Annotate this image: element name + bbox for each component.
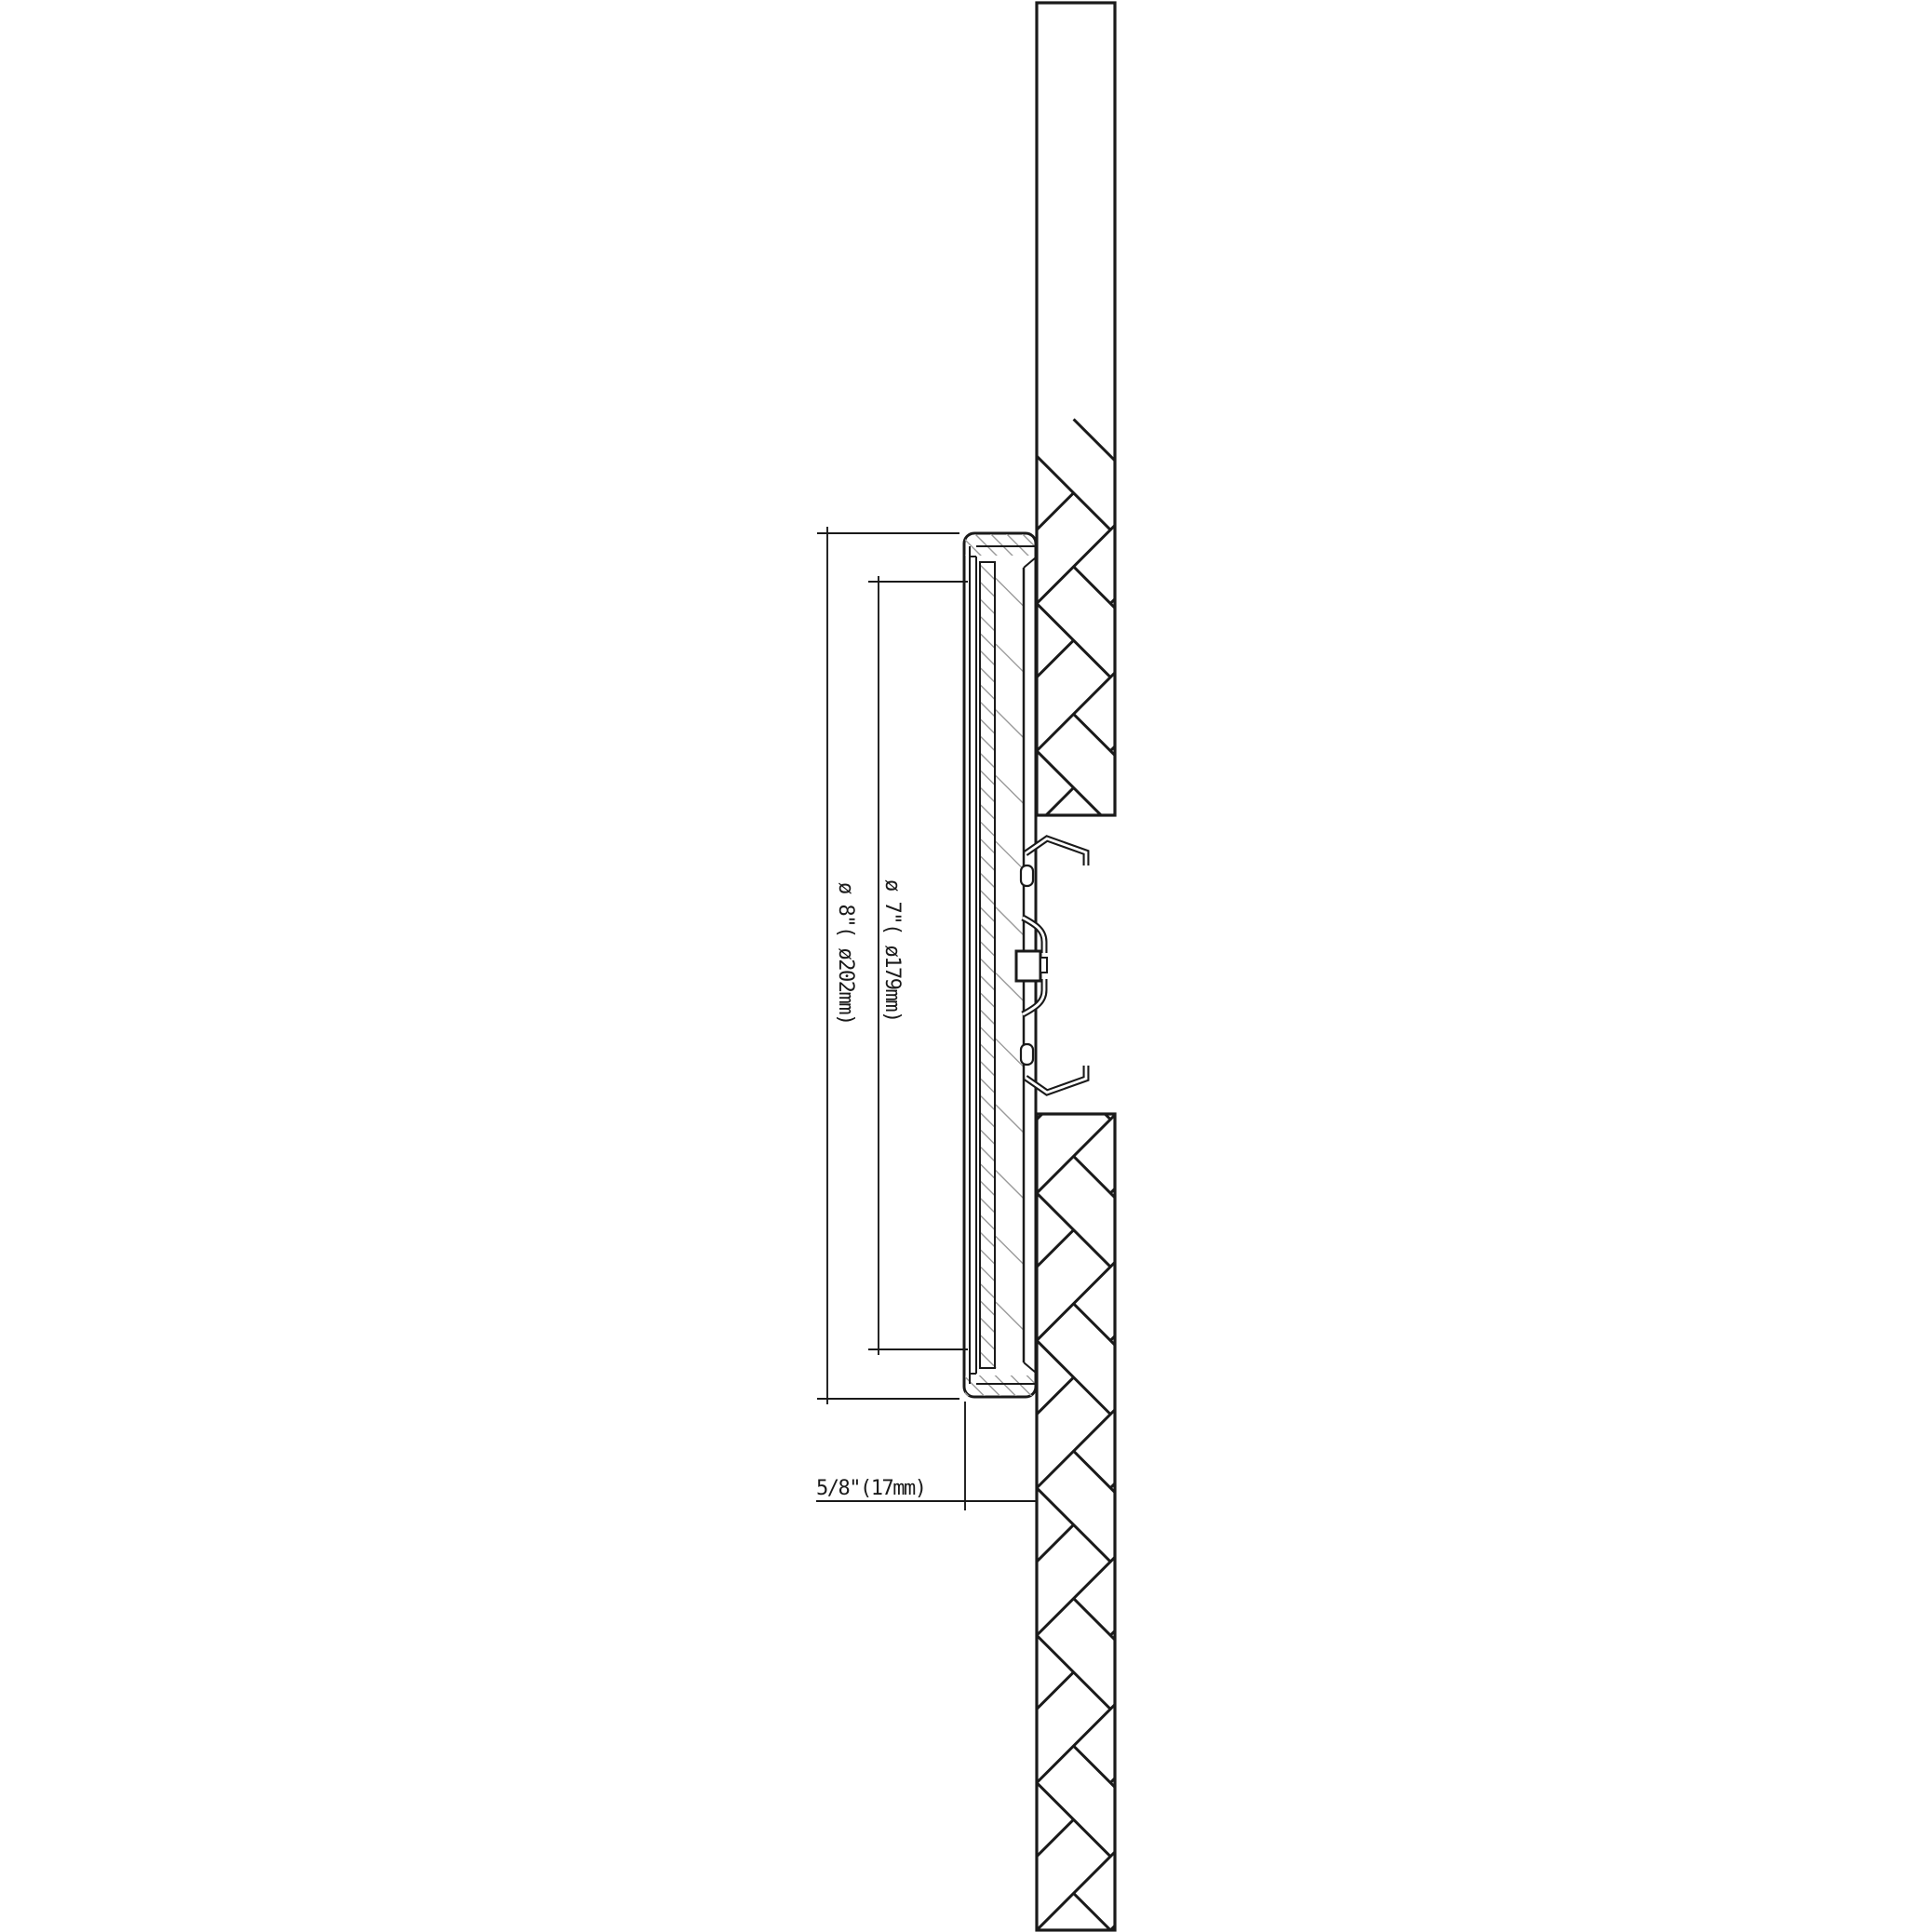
- upper-clip-rivet: [1021, 865, 1033, 886]
- installation-section-drawing: ø 8"( ø202mm) ø 7"( ø179mm) 5/8"(17mm): [0, 0, 1932, 1932]
- wall-section-upper: [1037, 3, 1115, 815]
- spring-clips: [1016, 839, 1086, 1093]
- section-drawing-canvas: ø 8"( ø202mm) ø 7"( ø179mm) 5/8"(17mm): [0, 0, 1932, 1932]
- driver-box: [1016, 951, 1040, 981]
- dim-outer-label: ø 8"( ø202mm): [834, 882, 857, 1025]
- driver-box-tab: [1040, 958, 1047, 973]
- wall-section-lower: [1037, 1114, 1115, 1930]
- panel-light-fixture: [0, 0, 1932, 1932]
- dim-aperture-label: ø 7"( ø179mm): [880, 879, 904, 1022]
- dim-depth-label: 5/8"(17mm): [816, 1477, 925, 1500]
- wall-outline: [1037, 3, 1115, 1930]
- lower-clip-rivet: [1021, 1044, 1033, 1065]
